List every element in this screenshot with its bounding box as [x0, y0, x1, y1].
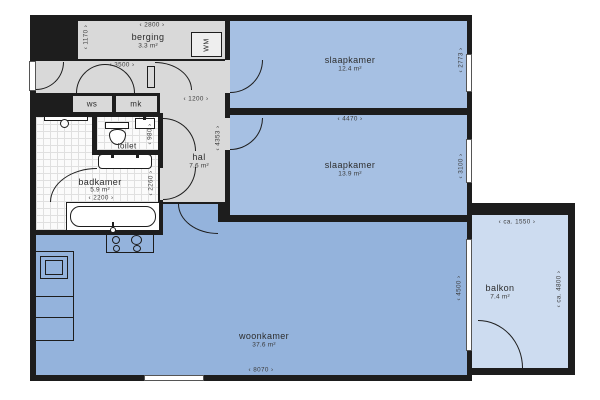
washbasin-icon	[98, 154, 152, 169]
window-woonkamer-bottom	[144, 375, 204, 381]
room-area-balkon: 7.4 m²	[490, 294, 510, 301]
washing-machine-icon: WM	[191, 32, 222, 57]
closet-label-ws: ws	[87, 100, 98, 109]
burner-icon	[113, 245, 120, 252]
washing-machine-label: WM	[203, 38, 210, 51]
dim-woonkamer-depth: ‹ 4500 ›	[456, 276, 463, 301]
dim-badkamer-depth: ‹ 2260 ›	[148, 171, 155, 196]
kitchen-counter-shelf-1	[36, 296, 74, 297]
kitchen-counter-shelf-2	[36, 317, 74, 318]
room-area-woonkamer: 37.6 m²	[252, 342, 275, 349]
dim-hal-depth: ‹ 4353 ›	[215, 126, 222, 151]
wall-slaapkamer2-bottom	[225, 215, 472, 222]
toilet-tank-icon	[105, 122, 129, 129]
fontein-tap	[143, 116, 146, 120]
stove-icon	[106, 232, 154, 253]
room-label-slaapkamer-1: slaapkamer	[325, 55, 376, 65]
room-label-berging: berging	[132, 32, 165, 42]
room-area-berging: 3.3 m²	[138, 43, 158, 50]
floorplan-canvas: WM berging 3.3 m² ws mk toilet hal 7.6 m…	[0, 0, 600, 400]
wall-hal-corner	[218, 202, 230, 222]
room-area-badkamer: 5.9 m²	[90, 187, 110, 194]
dim-hal-width: ‹ 1200 ›	[184, 96, 209, 103]
room-label-badkamer: badkamer	[78, 177, 121, 187]
dim-entree-width: ‹ 3500 ›	[110, 62, 135, 69]
wall-slaapkamer-divider	[230, 108, 472, 115]
dim-slaapkamer1-depth: ‹ 2773 ›	[458, 48, 465, 73]
washbasin-tap-right	[136, 152, 139, 158]
dim-badkamer-width: ‹ 2200 ›	[89, 195, 114, 202]
room-label-toilet: toilet	[117, 142, 136, 151]
dim-balkon-width: ‹ ca. 1550 ›	[499, 219, 536, 226]
dim-woonkamer-width: ‹ 8070 ›	[249, 367, 274, 374]
dim-slaapkamer2-depth: ‹ 3100 ›	[458, 154, 465, 179]
window-slaapkamer-2	[466, 139, 472, 183]
dim-toilet-depth: ‹ 980 ›	[147, 124, 154, 145]
dim-berging-depth: ‹ 1170 ›	[83, 25, 90, 49]
closet-label-mk: mk	[130, 100, 141, 109]
shower-head-icon	[60, 119, 69, 128]
burner-icon	[131, 235, 142, 245]
room-label-hal: hal	[192, 152, 205, 162]
dim-balkon-depth: ‹ ca. 4800 ›	[556, 271, 563, 308]
room-area-hal: 7.6 m²	[189, 163, 209, 170]
burner-icon	[133, 245, 141, 252]
room-area-slaapkamer-1: 12.4 m²	[338, 66, 361, 73]
room-label-balkon: balkon	[486, 283, 515, 293]
wall-toilet-left	[92, 115, 97, 155]
front-door-opening	[29, 61, 36, 91]
wall-hal-bottom-left	[160, 202, 180, 204]
washbasin-tap-left	[111, 152, 114, 158]
burner-icon	[112, 236, 120, 244]
balcony-door-opening	[466, 239, 472, 351]
room-label-woonkamer: woonkamer	[239, 331, 289, 341]
berging-door-leaf	[147, 66, 155, 88]
room-label-slaapkamer-2: slaapkamer	[325, 160, 376, 170]
dim-berging-width: ‹ 2800 ›	[140, 22, 165, 29]
window-slaapkamer-1	[466, 54, 472, 92]
dim-slaapkamer2-width: ‹ 4470 ›	[338, 116, 363, 123]
room-area-slaapkamer-2: 13.9 m²	[338, 171, 361, 178]
